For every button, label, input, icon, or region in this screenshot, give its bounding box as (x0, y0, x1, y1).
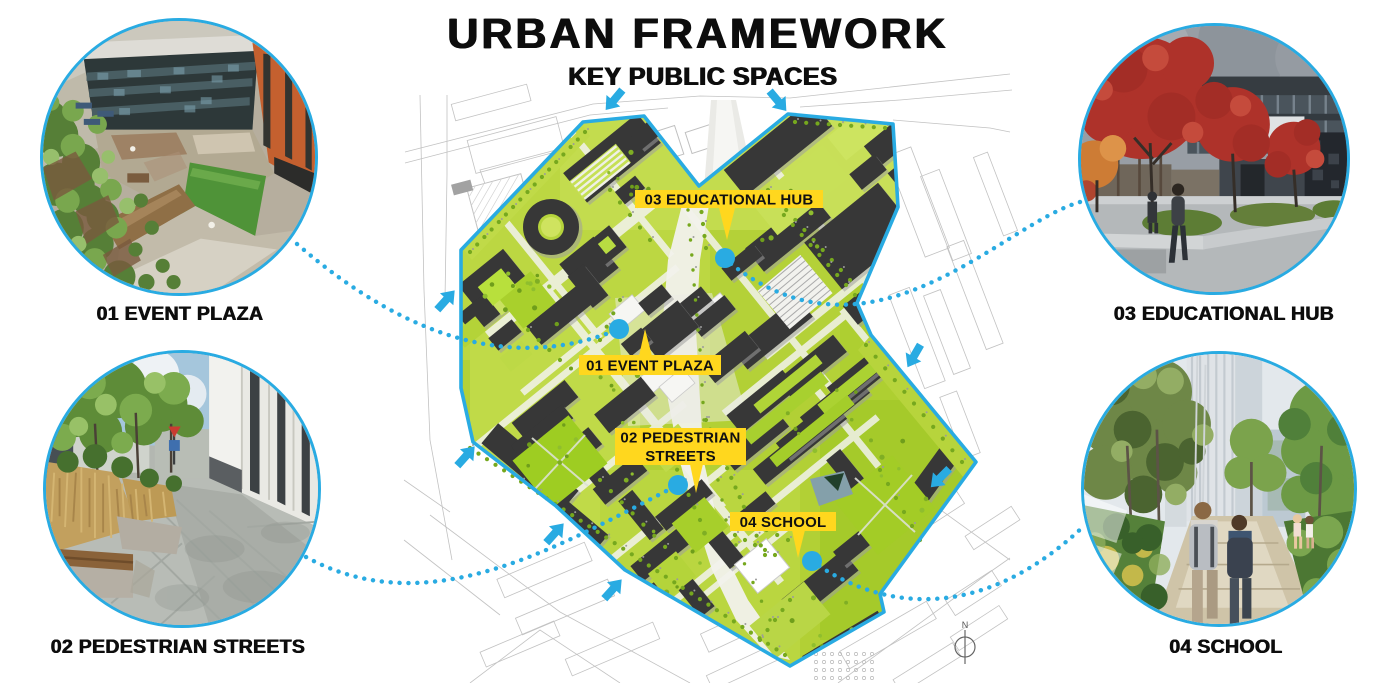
svg-text:N: N (962, 620, 969, 630)
svg-text:04 SCHOOL: 04 SCHOOL (740, 514, 827, 531)
svg-text:03 EDUCATIONAL HUB: 03 EDUCATIONAL HUB (645, 191, 814, 208)
svg-text:02 PEDESTRIAN: 02 PEDESTRIAN (620, 430, 740, 447)
svg-text:01 EVENT PLAZA: 01 EVENT PLAZA (586, 357, 714, 374)
svg-text:STREETS: STREETS (645, 448, 716, 465)
